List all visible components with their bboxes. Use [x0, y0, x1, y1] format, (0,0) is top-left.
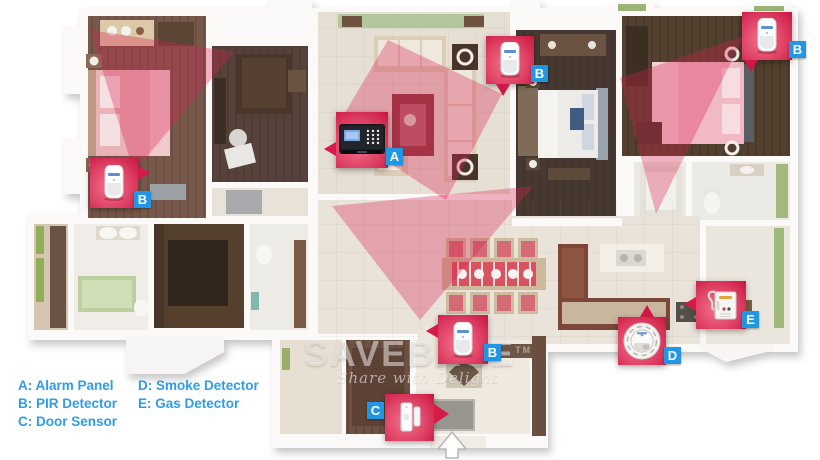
legend-item-pir-detector: B: PIR Detector	[18, 395, 138, 413]
marker-gas-detector: E	[696, 281, 746, 329]
rooms-bottom-left	[34, 224, 308, 330]
pointer-down-icon	[744, 60, 758, 72]
entrance-arrow-icon	[435, 430, 469, 460]
room-study	[212, 46, 308, 216]
marker-label-c: C	[367, 402, 384, 419]
legend-column-2: D: Smoke Detector E: Gas Detector	[138, 377, 288, 431]
legend-item-door-sensor: C: Door Sensor	[18, 413, 138, 431]
marker-door-sensor: C	[385, 394, 434, 441]
pir-detector-icon	[451, 322, 475, 358]
pointer-left-icon	[426, 324, 438, 338]
pointer-left-icon	[324, 142, 336, 156]
smoke-detector-icon	[622, 321, 662, 361]
marker-pir-bedroom-right: B	[742, 12, 792, 60]
pointer-left-icon	[684, 297, 696, 311]
marker-smoke-detector: D	[618, 317, 666, 365]
legend-item-gas-detector: E: Gas Detector	[138, 395, 288, 413]
marker-label-b2: B	[789, 41, 806, 58]
pointer-down-icon	[496, 84, 510, 96]
pointer-right-icon	[434, 404, 449, 424]
legend: A: Alarm Panel B: PIR Detector C: Door S…	[18, 377, 288, 431]
door-sensor-icon	[398, 402, 422, 434]
marker-label-b1: B	[531, 65, 548, 82]
alarm-panel-icon	[339, 124, 385, 156]
marker-label-e: E	[742, 311, 759, 328]
legend-item-alarm-panel: A: Alarm Panel	[18, 377, 138, 395]
marker-label-b4: B	[484, 344, 501, 361]
marker-label-b3: B	[134, 191, 151, 208]
marker-alarm-panel: A	[336, 112, 388, 168]
marker-label-d: D	[664, 347, 681, 364]
pir-detector-icon	[102, 165, 126, 201]
pointer-right-icon	[138, 166, 150, 180]
floorplan-diagram: SAVEBASETM Share with Delight A	[0, 0, 820, 460]
pointer-up-icon	[640, 305, 654, 317]
gas-detector-icon	[704, 287, 738, 323]
pir-detector-icon	[498, 42, 522, 78]
marker-label-a: A	[386, 148, 403, 165]
legend-column-1: A: Alarm Panel B: PIR Detector C: Door S…	[18, 377, 138, 431]
marker-pir-dining: B	[438, 315, 488, 364]
legend-item-smoke-detector: D: Smoke Detector	[138, 377, 288, 395]
marker-pir-bedroom-left: B	[90, 158, 138, 208]
pir-detector-icon	[755, 18, 779, 54]
marker-pir-living: B	[486, 36, 534, 84]
